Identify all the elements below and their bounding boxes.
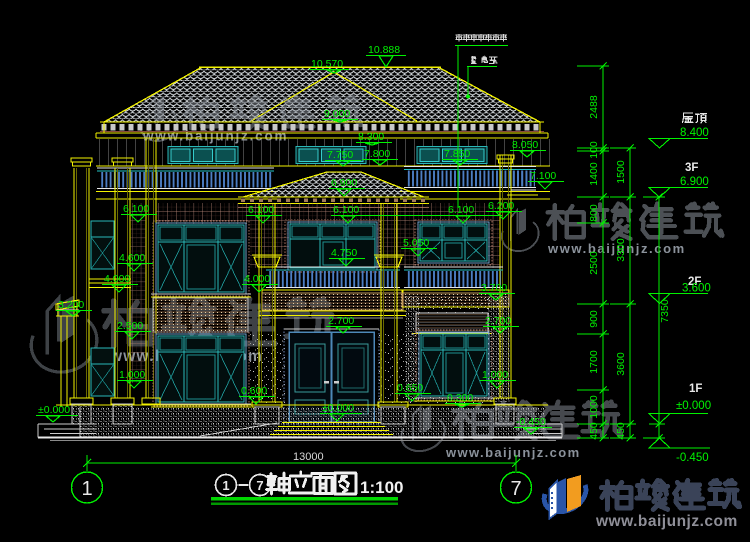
svg-text:www.baijunjz.com: www.baijunjz.com — [595, 513, 738, 530]
svg-text:5.050: 5.050 — [403, 237, 429, 249]
svg-text:2.500: 2.500 — [117, 320, 143, 332]
svg-text:1.000: 1.000 — [119, 369, 145, 381]
svg-text:6.900: 6.900 — [680, 176, 709, 188]
svg-text:1700: 1700 — [588, 350, 600, 374]
svg-text:1:100: 1:100 — [360, 478, 403, 497]
svg-text:3600: 3600 — [615, 352, 627, 376]
svg-text:2.700: 2.700 — [485, 315, 511, 327]
svg-text:3.600: 3.600 — [682, 283, 711, 295]
svg-text:7.100: 7.100 — [530, 170, 556, 182]
svg-text:10.888: 10.888 — [368, 44, 400, 56]
svg-text:10.570: 10.570 — [311, 58, 343, 70]
svg-text:6.900: 6.900 — [331, 177, 357, 189]
svg-text:7: 7 — [510, 478, 521, 500]
svg-text:3.200: 3.200 — [58, 299, 84, 311]
svg-text:7.750: 7.750 — [327, 149, 353, 161]
svg-text:1F: 1F — [689, 383, 702, 395]
svg-text:8.300: 8.300 — [358, 131, 384, 143]
svg-text:2488: 2488 — [588, 95, 600, 119]
svg-text:1: 1 — [81, 478, 92, 500]
svg-text:7.850: 7.850 — [444, 148, 470, 160]
svg-text:8.050: 8.050 — [512, 139, 538, 151]
svg-text:6.100: 6.100 — [333, 204, 359, 216]
svg-text:±0.000: ±0.000 — [676, 400, 711, 412]
svg-text:6.200: 6.200 — [488, 200, 514, 212]
svg-text:900: 900 — [588, 310, 600, 328]
svg-text:7: 7 — [256, 478, 263, 493]
svg-text:3300: 3300 — [615, 238, 627, 262]
svg-text:6.100: 6.100 — [248, 204, 274, 216]
svg-text:6.100: 6.100 — [123, 203, 149, 215]
svg-text:www.baijunjz.com: www.baijunjz.com — [445, 445, 581, 460]
svg-text:9.000: 9.000 — [324, 108, 350, 120]
svg-text:100: 100 — [588, 141, 600, 159]
svg-text:1500: 1500 — [615, 160, 627, 184]
svg-text:4.000: 4.000 — [104, 273, 130, 285]
svg-text:1.000: 1.000 — [482, 369, 508, 381]
svg-text:7.800: 7.800 — [364, 148, 390, 160]
svg-text:1: 1 — [222, 478, 229, 493]
svg-text:8.400: 8.400 — [680, 127, 709, 139]
svg-text:6.100: 6.100 — [448, 204, 474, 216]
svg-text:-0.450: -0.450 — [516, 416, 546, 428]
svg-text:450: 450 — [615, 422, 627, 440]
svg-text:3F: 3F — [685, 162, 698, 174]
svg-text:±0.000: ±0.000 — [38, 404, 70, 416]
svg-text:3.700: 3.700 — [481, 282, 507, 294]
svg-text:13000: 13000 — [293, 451, 324, 463]
svg-text:4.600: 4.600 — [119, 252, 145, 264]
svg-text:1400: 1400 — [588, 162, 600, 186]
svg-text:4.750: 4.750 — [331, 247, 357, 259]
svg-text:±0.000: ±0.000 — [322, 402, 354, 414]
svg-text:2.700: 2.700 — [328, 315, 354, 327]
svg-text:0.600: 0.600 — [241, 385, 267, 397]
svg-text:0.650: 0.650 — [397, 382, 423, 394]
svg-text:1000: 1000 — [588, 395, 600, 419]
svg-text:2500: 2500 — [588, 251, 600, 275]
svg-text:4.000: 4.000 — [244, 273, 270, 285]
svg-text:-0.450: -0.450 — [676, 452, 709, 464]
svg-text:450: 450 — [588, 422, 600, 440]
svg-text:0.300: 0.300 — [447, 392, 473, 404]
svg-text:800: 800 — [588, 204, 600, 222]
